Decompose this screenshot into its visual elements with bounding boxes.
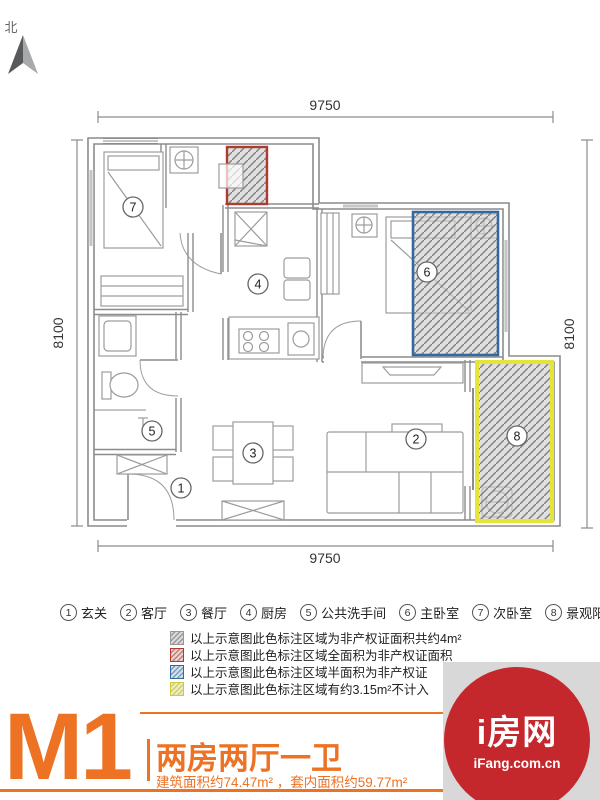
compass-north-label: 北 (4, 20, 17, 35)
sofa (327, 432, 463, 513)
room-legend-item: 5公共洗手间 (300, 603, 386, 622)
unit-code: M1 (4, 700, 130, 795)
shoe-cabinet (117, 455, 167, 474)
room-label-6: 6 (417, 262, 437, 282)
zone-legend-item-yellow: 以上示意图此色标注区域有约3.15m²不计入 (170, 680, 462, 697)
yellow-hatch-swatch (170, 682, 184, 696)
svg-text:4: 4 (255, 278, 262, 292)
accent-rule-bottom (0, 789, 443, 792)
tv-cabinet (362, 363, 463, 383)
room-legend-row: 1玄关 2客厅 3餐厅 4厨房 5公共洗手间 6主卧室 7次卧室 8景观阳台 (60, 603, 600, 622)
water-heater (170, 147, 198, 173)
svg-text:5: 5 (149, 425, 156, 439)
svg-text:8: 8 (514, 430, 521, 444)
zone-legend-item-blue: 以上示意图此色标注区域半面积为非产权证 (170, 663, 462, 680)
zone-legend-item-gray: 以上示意图此色标注区域为非产权证面积共约4m² (170, 629, 462, 646)
site-logo: i房网 iFang.com.cn (443, 662, 600, 800)
gray-hatch-swatch (170, 631, 184, 645)
svg-text:1: 1 (178, 482, 185, 496)
accent-rule-top (140, 712, 443, 714)
blue-hatch-swatch (170, 665, 184, 679)
dim-right: 8100 (561, 318, 577, 349)
room-label-2: 2 (406, 429, 426, 449)
fridge (284, 258, 310, 300)
dim-bottom: 9750 (309, 550, 340, 566)
site-logo-brand: i房网 (477, 705, 557, 754)
dim-left: 8100 (50, 317, 66, 348)
room-legend-item: 6主卧室 (399, 603, 459, 622)
desk (101, 276, 183, 306)
svg-text:3: 3 (250, 447, 257, 461)
kitchen-counter (229, 317, 319, 359)
room-legend-item: 8景观阳台 (545, 603, 600, 622)
nightstand-left (352, 214, 377, 237)
room-legend-item: 1玄关 (60, 603, 107, 622)
room-label-4: 4 (248, 274, 268, 294)
svg-text:6: 6 (424, 266, 431, 280)
svg-text:7: 7 (130, 201, 137, 215)
svg-text:2: 2 (413, 433, 420, 447)
zone-legend-item-red: 以上示意图此色标注区域全面积为非产权证面积 (170, 646, 462, 663)
bathroom-sink (99, 316, 136, 356)
room-legend-item: 2客厅 (120, 603, 167, 622)
room-label-7: 7 (123, 197, 143, 217)
compass-needle-dark (8, 35, 23, 74)
zone-legend: 以上示意图此色标注区域为非产权证面积共约4m² 以上示意图此色标注区域全面积为非… (170, 629, 462, 697)
room-legend-item: 4厨房 (240, 603, 287, 622)
room-label-1: 1 (171, 478, 191, 498)
unit-area-info: 建筑面积约74.47m² ，套内面积约59.77m² (156, 771, 407, 791)
accent-divider (147, 739, 150, 781)
compass: 北 (4, 20, 38, 74)
red-hatch-swatch (170, 648, 184, 662)
red-zone-fixture (219, 164, 243, 188)
room-label-3: 3 (243, 443, 263, 463)
floorplan-page: 北 9750 9750 8100 8100 (0, 0, 600, 800)
site-logo-domain: iFang.com.cn (473, 756, 560, 771)
flue-shaft (235, 212, 267, 246)
room-legend-item: 7次卧室 (472, 603, 532, 622)
blue-zone (413, 212, 498, 355)
room-label-5: 5 (142, 421, 162, 441)
dim-top: 9750 (309, 97, 340, 113)
room-legend-item: 3餐厅 (180, 603, 227, 622)
toilet (102, 372, 138, 399)
floorplan-drawing: 北 9750 9750 8100 8100 (0, 0, 600, 598)
cabinet-bottom (222, 501, 284, 520)
room-label-8: 8 (507, 426, 527, 446)
compass-needle-light (23, 35, 38, 74)
wardrobe (321, 213, 339, 294)
site-logo-circle: i房网 iFang.com.cn (444, 667, 590, 800)
